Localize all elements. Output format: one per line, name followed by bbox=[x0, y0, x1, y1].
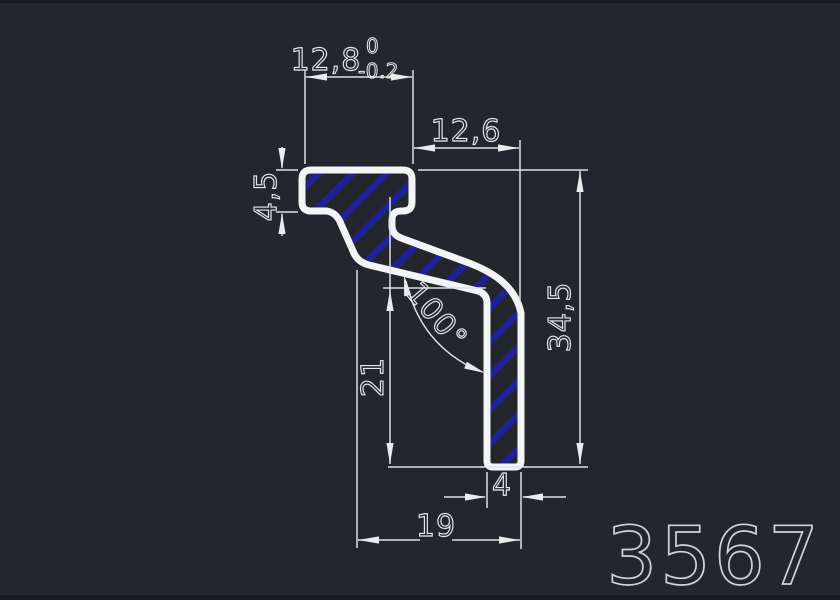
part-number: 3567 bbox=[606, 510, 822, 600]
dim-leg-height-label: 21 bbox=[356, 357, 391, 397]
dim-flange-thickness: 4,5 bbox=[249, 147, 298, 236]
dim-bottom-width-label: 19 bbox=[416, 509, 456, 544]
dim-flange-thickness-label: 4,5 bbox=[249, 171, 284, 222]
cad-drawing-canvas[interactable]: 12,8 0 -0.2 12,6 4,5 bbox=[0, 0, 840, 600]
dim-top-width-tol-upper: 0 bbox=[366, 34, 379, 58]
dim-overall-height-label: 34,5 bbox=[543, 282, 578, 353]
drawing-svg: 12,8 0 -0.2 12,6 4,5 bbox=[0, 0, 840, 600]
dim-top-width: 12,8 0 -0.2 bbox=[291, 34, 413, 164]
dim-top-width-tol-lower: -0.2 bbox=[358, 59, 399, 83]
dim-leg-width-label: 4 bbox=[492, 468, 512, 503]
dim-step-width-label: 12,6 bbox=[431, 114, 502, 149]
dim-leg-width: 4 bbox=[444, 468, 566, 549]
profile-cross-section bbox=[302, 170, 521, 467]
dim-top-width-label: 12,8 bbox=[291, 43, 362, 78]
